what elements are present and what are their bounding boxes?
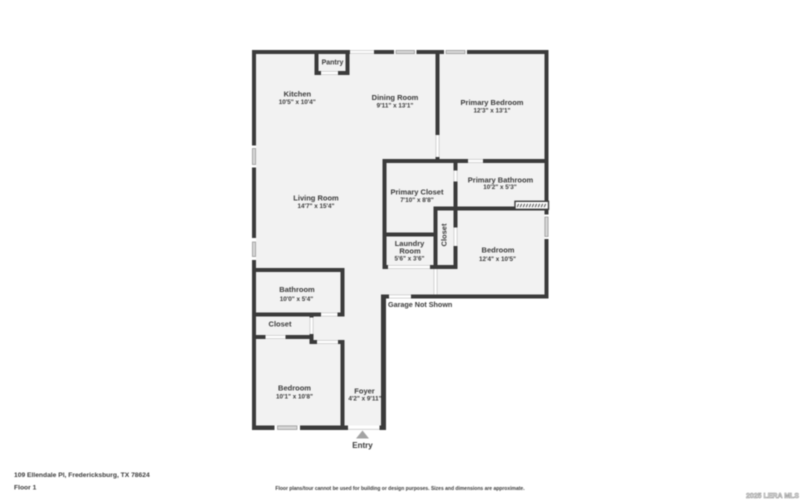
svg-text:2025 LERA MLS: 2025 LERA MLS <box>746 493 799 500</box>
svg-text:Bathroom: Bathroom <box>279 285 315 294</box>
svg-text:Pantry: Pantry <box>322 60 344 67</box>
svg-text:10'5" x 10'4": 10'5" x 10'4" <box>279 99 316 106</box>
svg-text:5'6" x 3'6": 5'6" x 3'6" <box>395 256 425 263</box>
svg-text:Floor 1: Floor 1 <box>14 484 37 491</box>
svg-text:Closet: Closet <box>440 223 449 246</box>
svg-text:Primary Bedroom: Primary Bedroom <box>461 98 524 107</box>
svg-text:12'3" x 13'1": 12'3" x 13'1" <box>474 108 511 115</box>
svg-text:Garage Not Shown: Garage Not Shown <box>388 300 452 309</box>
svg-text:Entry: Entry <box>352 441 373 450</box>
svg-text:109 Ellendale Pl, Fredericksbu: 109 Ellendale Pl, Fredericksburg, TX 786… <box>14 472 150 479</box>
svg-text:12'4" x 10'5": 12'4" x 10'5" <box>479 256 516 263</box>
svg-text:10'0" x 5'4": 10'0" x 5'4" <box>280 296 313 303</box>
svg-text:Primary Closet: Primary Closet <box>391 188 444 197</box>
svg-text:Foyer: Foyer <box>354 387 375 396</box>
svg-text:Living Room: Living Room <box>293 194 339 203</box>
svg-text:10'1" x 10'8": 10'1" x 10'8" <box>276 394 313 401</box>
svg-text:Closet: Closet <box>269 320 292 329</box>
svg-text:Dining Room: Dining Room <box>372 93 419 102</box>
svg-text:Kitchen: Kitchen <box>284 90 312 99</box>
svg-text:14'7" x 15'4": 14'7" x 15'4" <box>298 203 335 210</box>
svg-text:Bedroom: Bedroom <box>482 246 515 255</box>
svg-text:7'10" x 8'8": 7'10" x 8'8" <box>400 197 433 204</box>
svg-text:Floor plans/tour cannot be use: Floor plans/tour cannot be used for buil… <box>275 486 525 492</box>
svg-text:Room: Room <box>399 247 421 256</box>
svg-text:Bedroom: Bedroom <box>278 384 311 393</box>
svg-text:10'2" x 5'3": 10'2" x 5'3" <box>483 184 516 191</box>
svg-text:9'11" x 13'1": 9'11" x 13'1" <box>377 103 414 110</box>
svg-text:4'2" x 9'11": 4'2" x 9'11" <box>348 396 381 403</box>
